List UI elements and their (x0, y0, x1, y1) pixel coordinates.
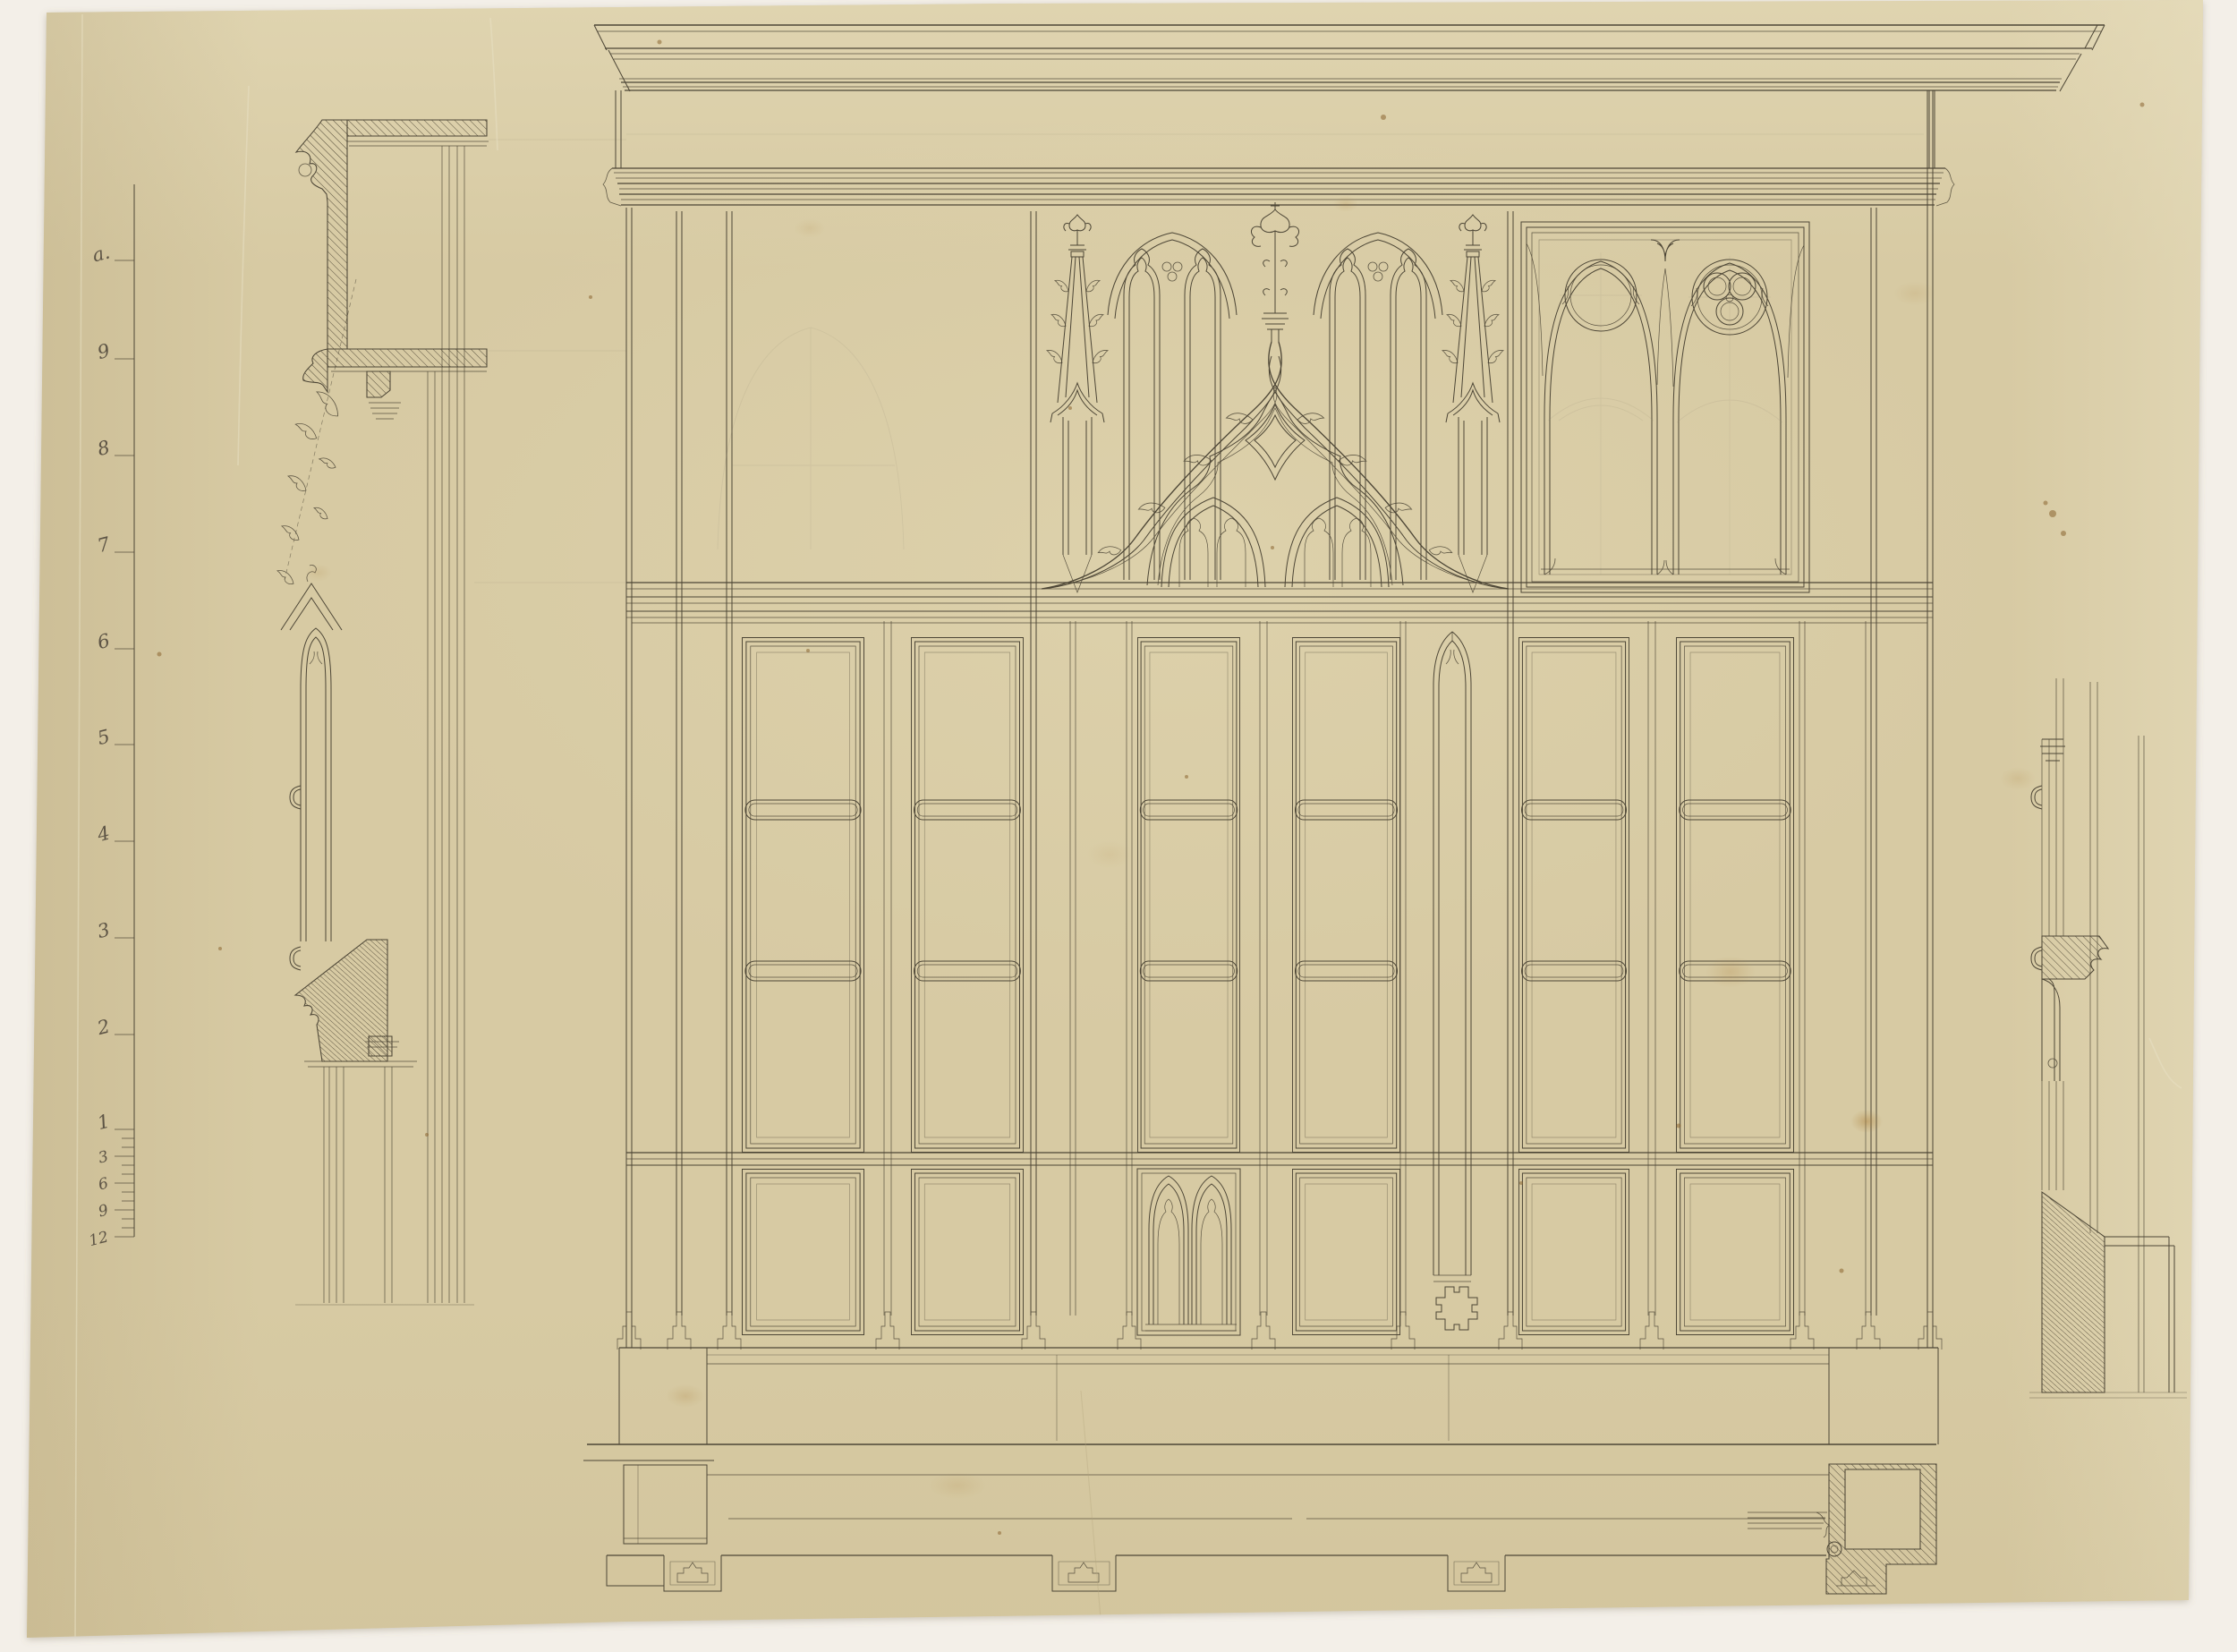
section-shelf-board (327, 349, 487, 367)
scanned-drawing-sheet: a. 9 8 7 6 5 4 3 2 1 3 6 9 12 (0, 0, 2237, 1652)
section-top-board (347, 120, 487, 136)
gothic-panelling-drawing: a. 9 8 7 6 5 4 3 2 1 3 6 9 12 (0, 0, 2237, 1652)
